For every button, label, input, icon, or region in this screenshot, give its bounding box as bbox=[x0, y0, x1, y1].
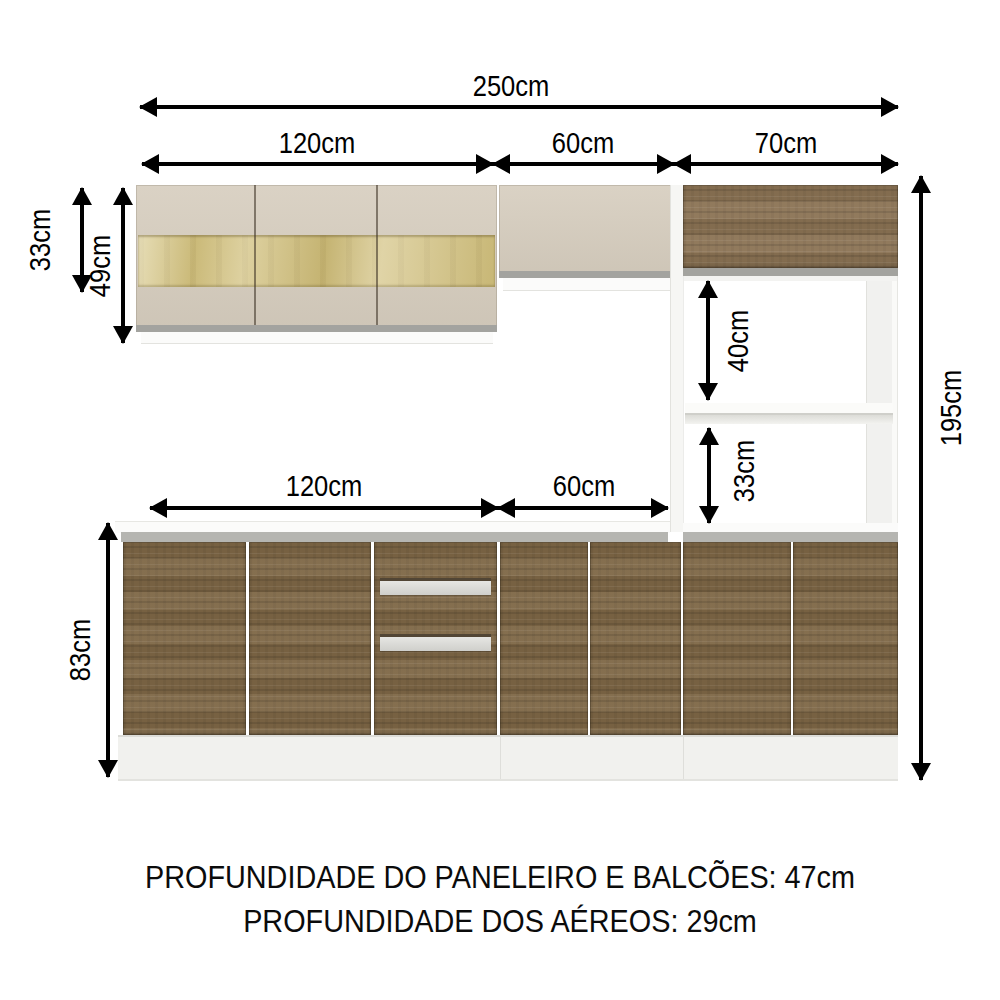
plinth-seam bbox=[500, 737, 501, 779]
drawer-handle bbox=[380, 578, 491, 595]
base-drawer-unit bbox=[374, 542, 497, 735]
upper-mid-width-arrow bbox=[493, 162, 674, 166]
upper-left-width-arrow bbox=[142, 162, 493, 166]
upper-cabinet-60 bbox=[499, 185, 674, 278]
aereo-33-label: 33cm bbox=[24, 209, 57, 271]
cabinet-bottom-trim bbox=[499, 271, 674, 278]
door-gap bbox=[376, 185, 378, 332]
kitchen-dimension-diagram: 250cm 120cm 60cm 70cm 33cm 49cm 40cm 33c… bbox=[0, 0, 1000, 1000]
base-mid-width-arrow bbox=[498, 506, 668, 510]
upper-mid-width-label: 60cm bbox=[552, 127, 614, 160]
tower-door-trim bbox=[683, 268, 898, 276]
plinth bbox=[118, 735, 898, 781]
base-height-label: 83cm bbox=[64, 619, 97, 681]
base-mid-width-label: 60cm bbox=[553, 470, 615, 503]
tower-open-frame bbox=[683, 276, 898, 530]
aereo-49-label: 49cm bbox=[84, 235, 117, 297]
tower-base-strip bbox=[683, 532, 898, 542]
overall-width-arrow bbox=[140, 105, 898, 109]
door-gap bbox=[254, 185, 256, 332]
base-door-1 bbox=[123, 542, 246, 735]
tower-base-top bbox=[683, 523, 898, 532]
overall-width-label: 250cm bbox=[473, 70, 550, 103]
drawer-handle bbox=[380, 634, 491, 651]
tower-base-door-left bbox=[683, 542, 791, 735]
tower-opening-40-arrow bbox=[706, 281, 710, 400]
footer-depth-line-2: PROFUNDIDADE DOS AÉREOS: 29cm bbox=[243, 903, 757, 940]
base-left-width-arrow bbox=[150, 506, 498, 510]
tower-opening-40-label: 40cm bbox=[722, 310, 755, 372]
cabinet-underside bbox=[503, 278, 670, 291]
overall-height-label: 195cm bbox=[935, 370, 968, 447]
tower-width-label: 70cm bbox=[755, 127, 817, 160]
tower-base-door-right bbox=[793, 542, 898, 735]
upper-cabinet-120 bbox=[136, 185, 497, 332]
base-door-2 bbox=[249, 542, 371, 735]
tower-shelf-shadow bbox=[685, 415, 893, 424]
base-door-3 bbox=[500, 542, 588, 735]
upper-left-width-label: 120cm bbox=[279, 127, 356, 160]
countertop-strip bbox=[121, 532, 668, 542]
cabinet-underside bbox=[141, 332, 493, 344]
overall-height-arrow bbox=[919, 176, 923, 780]
aereo-49-arrow bbox=[121, 188, 125, 343]
tower-upper-door bbox=[683, 185, 898, 268]
cabinet-bottom-trim bbox=[136, 325, 497, 332]
tower-width-arrow bbox=[674, 162, 898, 166]
base-height-arrow bbox=[106, 523, 110, 777]
footer-depth-line-1: PROFUNDIDADE DO PANELEIRO E BALCÕES: 47c… bbox=[145, 859, 855, 896]
glass-panel bbox=[138, 235, 495, 287]
base-door-4 bbox=[590, 542, 681, 735]
tower-opening-33-arrow bbox=[707, 428, 711, 523]
tower-opening-33-label: 33cm bbox=[728, 440, 761, 502]
tower-shelf bbox=[685, 403, 893, 415]
base-left-width-label: 120cm bbox=[286, 470, 363, 503]
plinth-seam bbox=[683, 737, 684, 779]
